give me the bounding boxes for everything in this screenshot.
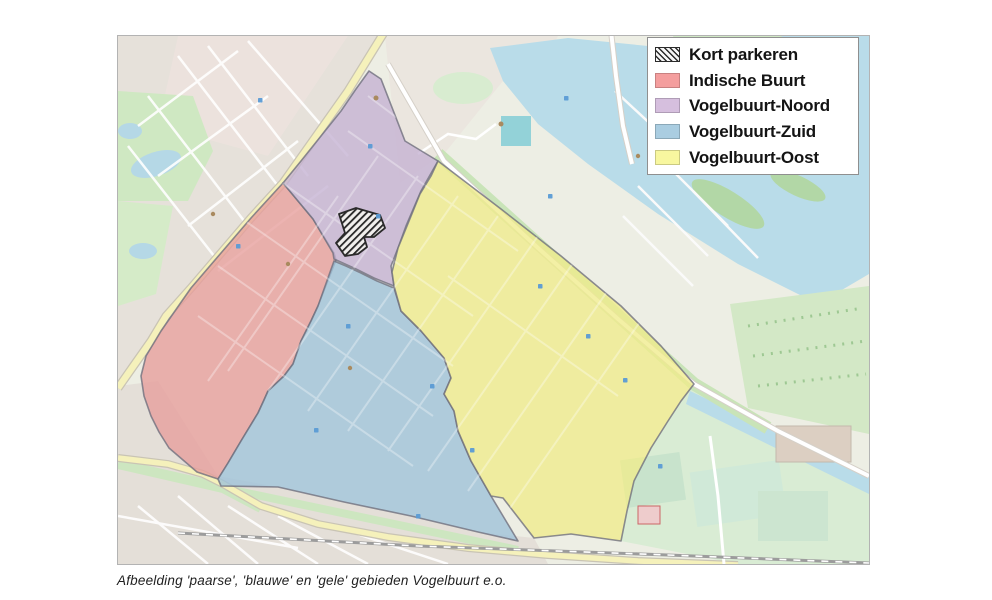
legend-label: Vogelbuurt-Oost [689, 149, 819, 166]
legend-label: Vogelbuurt-Zuid [689, 123, 816, 140]
legend-item-vogelbuurt-zuid: Vogelbuurt-Zuid [655, 123, 851, 140]
figure-caption: Afbeelding 'paarse', 'blauwe' en 'gele' … [117, 573, 507, 588]
building-tan [776, 426, 851, 462]
green-patch [433, 72, 493, 104]
legend: Kort parkeren Indische Buurt Vogelbuurt-… [647, 37, 859, 175]
sports-field [758, 491, 828, 541]
pool [501, 116, 531, 146]
building-red [638, 506, 660, 524]
legend-label: Vogelbuurt-Noord [689, 97, 830, 114]
legend-item-vogelbuurt-noord: Vogelbuurt-Noord [655, 97, 851, 114]
color-swatch-icon [655, 124, 680, 139]
legend-label: Indische Buurt [689, 72, 805, 89]
pond [129, 243, 157, 259]
map-figure: Kort parkeren Indische Buurt Vogelbuurt-… [117, 35, 870, 565]
color-swatch-icon [655, 98, 680, 113]
legend-item-vogelbuurt-oost: Vogelbuurt-Oost [655, 149, 851, 166]
hatch-swatch-icon [655, 47, 680, 62]
legend-item-kort-parkeren: Kort parkeren [655, 46, 851, 63]
color-swatch-icon [655, 73, 680, 88]
color-swatch-icon [655, 150, 680, 165]
legend-item-indische-buurt: Indische Buurt [655, 72, 851, 89]
legend-label: Kort parkeren [689, 46, 798, 63]
